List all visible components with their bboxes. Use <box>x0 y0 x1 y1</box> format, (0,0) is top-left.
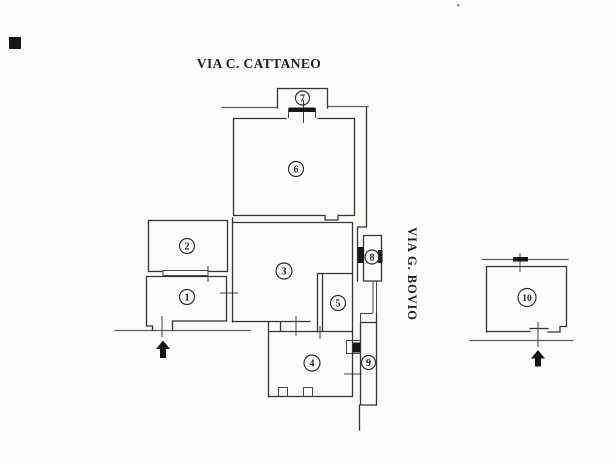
room-number: 9 <box>366 358 371 369</box>
door-1-2-leaf <box>163 271 208 276</box>
room-label-9: 9 <box>362 356 376 370</box>
threshold-9 <box>353 343 360 353</box>
room-label-1: 1 <box>180 290 195 305</box>
room-number: 5 <box>336 299 341 310</box>
room-9-walls <box>360 314 377 431</box>
shaft-walls <box>361 281 377 322</box>
room-label-4: 4 <box>304 355 320 371</box>
threshold-10 <box>513 257 528 262</box>
scan-artifact-square <box>9 37 21 49</box>
room-4-bottom-notches <box>279 388 313 397</box>
street-lines <box>115 107 573 341</box>
threshold-8-left <box>358 247 364 263</box>
entrance-arrow-icon <box>156 341 170 359</box>
room-3-walls <box>233 223 353 332</box>
room-number: 8 <box>370 253 375 264</box>
room-1-walls <box>147 277 227 331</box>
room-label-7: 7 <box>296 91 310 105</box>
room-number: 6 <box>294 165 299 176</box>
room-label-8: 8 <box>365 250 379 264</box>
entrance-arrow-icon <box>531 350 545 367</box>
room-label-6: 6 <box>289 162 304 177</box>
floor-plan-scan: VIA C. CATTANEO VIA G. BOVIO <box>0 0 616 464</box>
room-number: 1 <box>185 293 190 304</box>
threshold-6-7 <box>289 108 315 113</box>
room-label-2: 2 <box>180 239 195 254</box>
room-number: 4 <box>310 359 315 370</box>
room-number: 2 <box>185 242 190 253</box>
room-number: 10 <box>522 294 532 304</box>
scan-speck <box>457 4 460 7</box>
room-number: 7 <box>300 94 305 105</box>
door-ticks <box>162 100 538 374</box>
room-label-10: 10 <box>518 289 536 307</box>
room-number: 3 <box>282 267 287 278</box>
room-label-3: 3 <box>276 263 292 279</box>
street-label-bovio: VIA G. BOVIO <box>405 227 419 321</box>
room-label-5: 5 <box>331 296 346 311</box>
street-label-cattaneo: VIA C. CATTANEO <box>197 56 321 71</box>
